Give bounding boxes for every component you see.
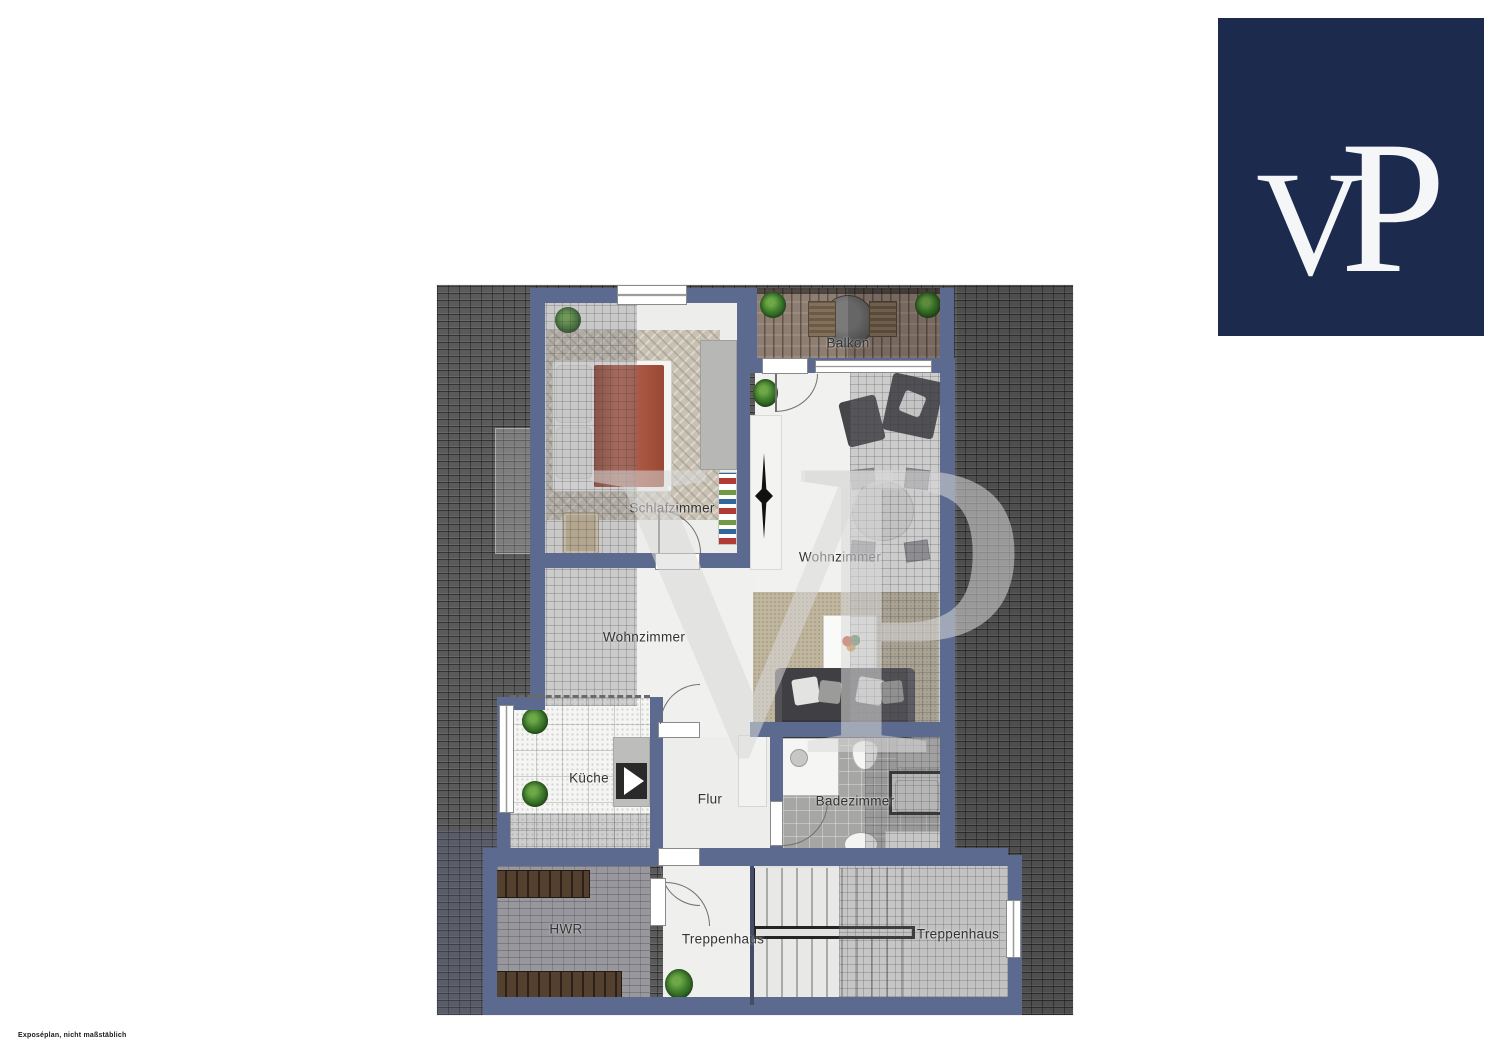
door-leaf (775, 374, 777, 412)
window (617, 285, 687, 305)
kitchen-appliance (616, 763, 647, 799)
label-hwr: HWR (549, 922, 582, 937)
plant-icon (522, 781, 548, 807)
hwr-shelf (495, 971, 622, 999)
roof-window-patch (495, 428, 531, 554)
kitchen-open-boundary (510, 695, 650, 698)
door (658, 722, 700, 738)
wall (940, 358, 955, 862)
window (815, 360, 932, 373)
wall (483, 848, 497, 1015)
disclaimer-text: Exposéplan, nicht maßstäblich (18, 1032, 127, 1039)
hwr-shelf (495, 870, 590, 898)
sofa-pillow (818, 680, 843, 705)
door (658, 848, 700, 866)
hall-closet (738, 735, 767, 807)
label-badezimmer: Badezimmer (816, 794, 895, 809)
label-balkon: Balkon (826, 336, 869, 351)
label-treppenhaus-left: Treppenhaus (682, 932, 764, 947)
door (762, 358, 808, 374)
label-schlafzimmer: Schlafzimmer (629, 501, 714, 516)
balcony-chair (808, 301, 836, 337)
wall (545, 553, 750, 568)
floor-plan: Balkon Schlafzimmer Wohnzimmer Wohnzimme… (437, 285, 1073, 1015)
appliance-detail (624, 767, 644, 795)
wall (750, 288, 757, 373)
plant-icon (665, 969, 693, 999)
bookshelf (718, 472, 737, 545)
label-wohnzimmer-left: Wohnzimmer (603, 630, 685, 645)
label-treppenhaus-right: Treppenhaus (917, 927, 999, 942)
wall (737, 303, 750, 568)
logo-letter-p: P (1340, 132, 1446, 284)
window (1006, 900, 1021, 958)
door (770, 801, 783, 846)
wall (750, 722, 955, 737)
shower-head (790, 749, 808, 767)
page: Balkon Schlafzimmer Wohnzimmer Wohnzimme… (0, 0, 1500, 1060)
label-flur: Flur (698, 792, 722, 807)
vp-logo: V P (1218, 18, 1484, 336)
door-leaf (658, 510, 660, 553)
wall (530, 288, 545, 703)
plant-icon (760, 292, 786, 318)
window (499, 705, 514, 813)
shower (777, 738, 839, 796)
sofa-pillow (791, 676, 821, 706)
door (650, 878, 666, 926)
wardrobe (700, 340, 737, 470)
plant-icon (522, 708, 548, 734)
door (655, 553, 700, 570)
label-wohnzimmer-right: Wohnzimmer (799, 550, 881, 565)
wall (483, 848, 1008, 866)
label-kueche: Küche (569, 771, 609, 786)
